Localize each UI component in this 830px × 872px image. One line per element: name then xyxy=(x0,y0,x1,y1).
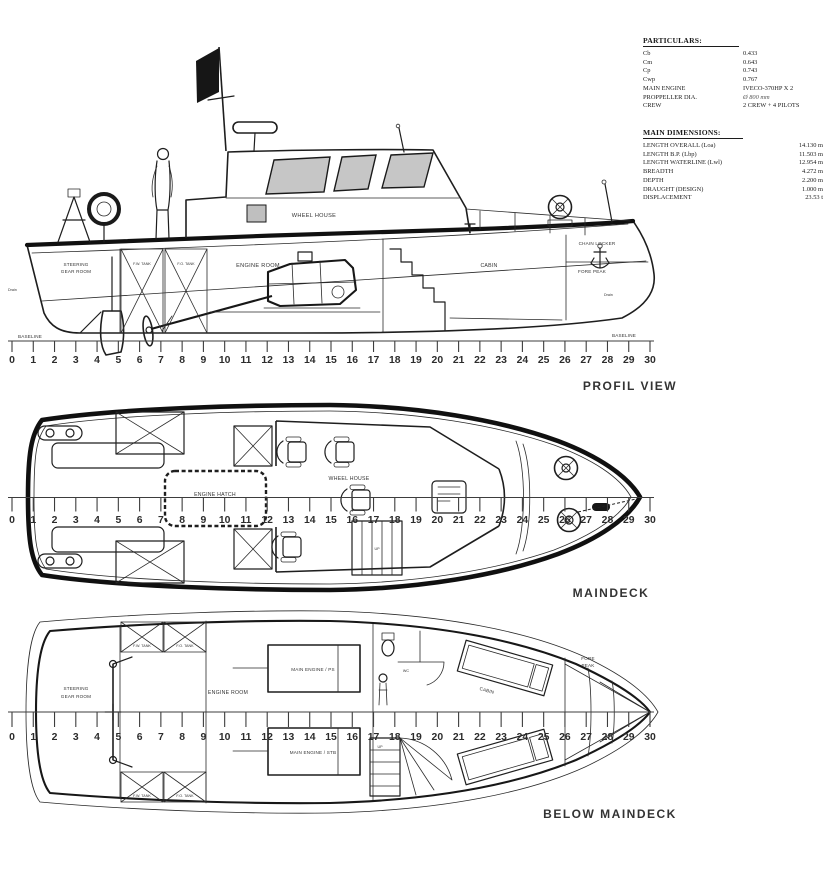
pilot-seat xyxy=(277,437,306,467)
svg-text:1: 1 xyxy=(30,355,36,366)
svg-text:11: 11 xyxy=(240,355,251,366)
svg-text:20: 20 xyxy=(432,515,444,526)
svg-text:8: 8 xyxy=(179,732,185,743)
wc-compartment xyxy=(382,631,444,685)
table-row: Cm0.643 xyxy=(643,59,823,68)
svg-text:28: 28 xyxy=(602,515,614,526)
svg-text:24: 24 xyxy=(517,732,529,743)
antenna xyxy=(399,128,404,152)
svg-text:20: 20 xyxy=(432,355,444,366)
label-main-engine-stb: MAIN ENGINE / STB xyxy=(290,750,337,755)
svg-text:13: 13 xyxy=(283,732,295,743)
label-main-engine-ps: MAIN ENGINE / PS xyxy=(291,667,335,672)
profile-stairs xyxy=(390,249,445,330)
svg-text:10: 10 xyxy=(219,355,231,366)
svg-text:25: 25 xyxy=(538,355,550,366)
label-fore-peak: FORE PEAK xyxy=(578,269,607,274)
label-steering-below-2: GEAR ROOM xyxy=(61,694,91,699)
chine-line xyxy=(42,261,646,301)
propeller xyxy=(141,316,154,347)
svg-text:4: 4 xyxy=(94,732,100,743)
mast xyxy=(219,47,226,151)
label-engine-room-below: ENGINE ROOM xyxy=(208,690,248,696)
label-engine-room: ENGINE ROOM xyxy=(236,263,280,269)
svg-text:15: 15 xyxy=(325,515,337,526)
table-row: Cb0.433 xyxy=(643,50,823,59)
lifebuoy-icon xyxy=(89,194,119,224)
svg-text:16: 16 xyxy=(346,515,358,526)
label-steering-below-1: STEERING xyxy=(63,686,88,691)
svg-text:28: 28 xyxy=(602,355,614,366)
svg-text:7: 7 xyxy=(158,732,164,743)
side-locker-stbd xyxy=(52,527,164,552)
svg-text:4: 4 xyxy=(94,515,100,526)
svg-text:19: 19 xyxy=(410,515,422,526)
svg-text:14: 14 xyxy=(304,732,316,743)
svg-text:26: 26 xyxy=(559,355,571,366)
svg-text:17: 17 xyxy=(368,515,380,526)
svg-text:24: 24 xyxy=(517,355,529,366)
svg-text:29: 29 xyxy=(623,732,635,743)
main-dimensions-table: MAIN DIMENSIONS: LENGTH OVERALL (Loa)14.… xyxy=(643,128,823,203)
label-tank-fo-stbd: F.O. TANK xyxy=(176,794,194,798)
svg-text:21: 21 xyxy=(453,732,465,743)
person-figure-below xyxy=(379,674,387,705)
maindeck-title: MAINDECK xyxy=(573,586,650,600)
particulars-title: PARTICULARS: xyxy=(643,36,739,47)
toilet-icon xyxy=(382,640,394,656)
svg-text:27: 27 xyxy=(580,732,592,743)
svg-text:3: 3 xyxy=(73,732,79,743)
label-tank-fw-port: F.W. TANK xyxy=(133,644,151,648)
flag-icon xyxy=(196,48,219,103)
svg-text:25: 25 xyxy=(538,515,550,526)
svg-text:12: 12 xyxy=(261,732,273,743)
svg-text:1: 1 xyxy=(30,515,36,526)
svg-text:30: 30 xyxy=(644,515,656,526)
svg-text:5: 5 xyxy=(115,732,121,743)
svg-text:9: 9 xyxy=(201,515,207,526)
svg-text:24: 24 xyxy=(517,515,529,526)
person-figure xyxy=(152,149,172,240)
svg-text:15: 15 xyxy=(325,355,337,366)
svg-text:2: 2 xyxy=(52,732,58,743)
radar-icon xyxy=(233,122,277,133)
svg-text:22: 22 xyxy=(474,355,486,366)
svg-text:26: 26 xyxy=(559,732,571,743)
svg-text:29: 29 xyxy=(623,355,635,366)
svg-text:6: 6 xyxy=(137,515,143,526)
svg-text:0: 0 xyxy=(9,355,15,366)
svg-text:9: 9 xyxy=(201,355,207,366)
label-steering-2: GEAR ROOM xyxy=(61,269,91,274)
window-3 xyxy=(382,153,433,188)
profile-view: STEERING GEAR ROOM F.W. TANK F.O. TANK E… xyxy=(8,47,654,355)
label-cabin-below: CABIN xyxy=(479,686,495,695)
side-locker-port xyxy=(52,443,164,468)
label-chain-locker: CHAIN LOCKER xyxy=(579,241,616,246)
svg-text:5: 5 xyxy=(115,515,121,526)
frame-ruler-maindeck: 0123456789101112131415161718192021222324… xyxy=(8,498,656,527)
engine-profile xyxy=(264,252,360,308)
jackstaff xyxy=(605,184,612,222)
label-wheel-house: WHEEL HOUSE xyxy=(292,213,336,219)
table-row: PROPPELLER DIA.Ø 800 mm xyxy=(643,94,823,103)
table-row: DEPTH2.200 m xyxy=(643,177,823,186)
svg-text:2: 2 xyxy=(52,355,58,366)
label-fore-peak-2: PEAK xyxy=(581,663,595,668)
svg-text:23: 23 xyxy=(495,355,507,366)
svg-text:23: 23 xyxy=(495,732,507,743)
label-tank2: F.O. TANK xyxy=(177,262,195,266)
svg-text:21: 21 xyxy=(453,515,465,526)
window-2 xyxy=(334,155,376,191)
svg-text:14: 14 xyxy=(304,355,316,366)
label-tank-fo-port: F.O. TANK xyxy=(176,644,194,648)
svg-text:13: 13 xyxy=(283,515,295,526)
table-row: DISPLACEMENT23.53 t xyxy=(643,194,823,203)
label-baseline-right: BASELINE xyxy=(612,333,636,338)
svg-text:30: 30 xyxy=(644,732,656,743)
svg-text:27: 27 xyxy=(580,355,592,366)
particulars-table: PARTICULARS: Cb0.433 Cm0.643 Cp0.743 Cwp… xyxy=(643,36,823,111)
svg-text:12: 12 xyxy=(261,355,273,366)
label-cabin: CABIN xyxy=(480,263,497,269)
svg-text:0: 0 xyxy=(9,515,15,526)
svg-text:20: 20 xyxy=(432,732,444,743)
bow-rail xyxy=(466,209,630,221)
label-tank1: F.W. TANK xyxy=(133,262,151,266)
label-steering-1: STEERING xyxy=(63,262,88,267)
svg-text:21: 21 xyxy=(453,355,465,366)
svg-text:6: 6 xyxy=(137,732,143,743)
svg-text:3: 3 xyxy=(73,515,79,526)
table-row: LENGTH B.P. (Lbp)11.503 m xyxy=(643,151,823,160)
profile-view-title: PROFIL VIEW xyxy=(583,379,677,393)
svg-text:29: 29 xyxy=(623,515,635,526)
svg-text:12: 12 xyxy=(261,515,273,526)
label-up: UP xyxy=(374,547,380,551)
svg-text:22: 22 xyxy=(474,515,486,526)
svg-text:19: 19 xyxy=(410,732,422,743)
label-up-below: UP xyxy=(377,745,383,749)
svg-text:10: 10 xyxy=(219,732,231,743)
pilot-seat xyxy=(325,437,354,467)
helm-seat xyxy=(341,485,370,515)
svg-text:16: 16 xyxy=(346,732,358,743)
svg-text:8: 8 xyxy=(179,515,185,526)
label-wc: WC xyxy=(403,669,409,673)
svg-text:5: 5 xyxy=(115,355,121,366)
general-arrangement-drawing: STEERING GEAR ROOM F.W. TANK F.O. TANK E… xyxy=(0,0,830,872)
table-row: DRAUGHT (DESIGN)1.000 m xyxy=(643,186,823,195)
label-drain-left: Drain xyxy=(8,288,17,292)
svg-text:13: 13 xyxy=(283,355,295,366)
svg-text:16: 16 xyxy=(346,355,358,366)
svg-text:11: 11 xyxy=(240,515,251,526)
main-dimensions-title: MAIN DIMENSIONS: xyxy=(643,128,743,139)
svg-text:17: 17 xyxy=(368,355,380,366)
below-maindeck-title: BELOW MAINDECK xyxy=(543,807,677,821)
svg-text:3: 3 xyxy=(73,355,79,366)
svg-text:26: 26 xyxy=(559,515,571,526)
svg-text:18: 18 xyxy=(389,732,401,743)
door-swing xyxy=(420,662,444,685)
table-row: MAIN ENGINEIVECO-370HP X 2 xyxy=(643,85,823,94)
svg-text:30: 30 xyxy=(644,355,656,366)
label-baseline-left: BASELINE xyxy=(18,334,42,339)
svg-text:0: 0 xyxy=(9,732,15,743)
windlass-profile xyxy=(549,196,572,219)
svg-text:18: 18 xyxy=(389,355,401,366)
svg-text:18: 18 xyxy=(389,515,401,526)
window-1 xyxy=(266,157,330,194)
svg-text:6: 6 xyxy=(137,355,143,366)
skeg xyxy=(80,312,101,333)
vent-window xyxy=(247,205,266,222)
svg-text:9: 9 xyxy=(201,732,207,743)
label-tank-fw-stbd: F.W. TANK xyxy=(133,794,151,798)
table-row: BREADTH4.272 m xyxy=(643,168,823,177)
svg-text:14: 14 xyxy=(304,515,316,526)
davit xyxy=(58,197,90,242)
svg-text:15: 15 xyxy=(325,732,337,743)
mooring-bitt-stbd xyxy=(38,554,82,568)
label-wheel-house-plan: WHEEL HOUSE xyxy=(329,476,370,482)
svg-text:7: 7 xyxy=(158,515,164,526)
wheelhouse-plan xyxy=(276,421,505,572)
svg-text:23: 23 xyxy=(495,515,507,526)
svg-text:11: 11 xyxy=(240,732,251,743)
svg-text:22: 22 xyxy=(474,732,486,743)
table-row: LENGTH WATERLINE (Lwl)12.954 m xyxy=(643,159,823,168)
svg-text:28: 28 xyxy=(602,732,614,743)
table-row: Cwp0.767 xyxy=(643,76,823,85)
svg-text:4: 4 xyxy=(94,355,100,366)
svg-text:27: 27 xyxy=(580,515,592,526)
svg-text:8: 8 xyxy=(179,355,185,366)
table-row: CREW2 CREW + 4 PILOTS xyxy=(643,102,823,111)
svg-text:17: 17 xyxy=(368,732,380,743)
svg-text:7: 7 xyxy=(158,355,164,366)
berth-port xyxy=(457,640,552,696)
svg-text:1: 1 xyxy=(30,732,36,743)
label-fore-peak-1: FORE xyxy=(581,656,595,661)
svg-text:10: 10 xyxy=(219,515,231,526)
label-drain-right: Drain xyxy=(604,293,613,297)
svg-text:19: 19 xyxy=(410,355,422,366)
table-row: LENGTH OVERALL (Loa)14.130 m xyxy=(643,142,823,151)
svg-text:25: 25 xyxy=(538,732,550,743)
table-row: Cp0.743 xyxy=(643,67,823,76)
svg-text:2: 2 xyxy=(52,515,58,526)
capstan xyxy=(555,457,578,480)
